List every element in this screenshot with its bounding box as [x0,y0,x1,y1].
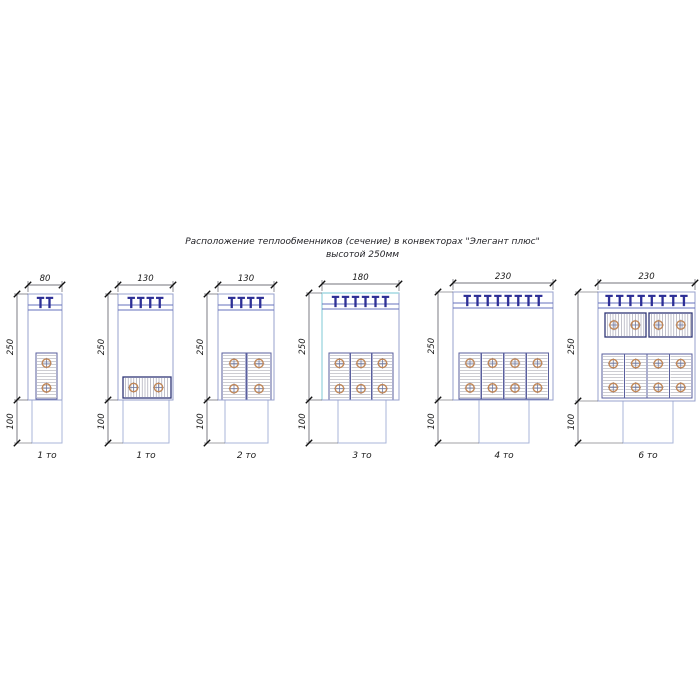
duct-dimension-label: 100 [427,413,437,429]
heat-exchanger [247,353,271,400]
grille-slat-icon [240,298,242,308]
duct-dimension-label: 100 [567,414,577,430]
heat-exchanger [602,354,625,398]
grille-slat-icon [259,298,261,308]
width-dimension-label: 80 [40,274,51,284]
heat-exchanger [222,353,246,400]
grille-slat-icon [528,296,530,306]
convector-cross-sections-svg: 802501001 то1302501001 то1302501002 то18… [0,0,700,700]
grille-slat-icon [608,296,610,306]
exchanger-count-label: 6 то [638,451,658,461]
grille-slat-icon [672,296,674,306]
convector-duct [623,401,673,443]
grille-slat-icon [140,298,142,308]
convector-diagram-2: 1302501001 то [97,274,176,461]
grille-slat-icon [651,296,653,306]
heat-exchanger [459,353,481,399]
grille-slat-icon [629,296,631,306]
convector-diagram-5: 2302501004 то [427,272,556,461]
convector-duct [338,400,386,443]
convector-diagram-4: 1802501003 то [298,273,402,461]
grille-slat-icon [619,296,621,306]
grille-slat-icon [40,298,42,308]
heat-exchanger [647,354,670,398]
duct-dimension-label: 100 [6,413,16,429]
heat-exchanger [527,353,549,399]
grille-slat-icon [355,297,357,307]
duct-dimension-label: 100 [298,413,308,429]
heat-exchanger [605,313,646,337]
grille-slat-icon [375,297,377,307]
grille-slat-icon [497,296,499,306]
exchanger-count-label: 3 то [352,451,372,461]
grille-slat-icon [149,298,151,308]
grille-slat-icon [130,298,132,308]
exchanger-count-label: 4 то [494,451,514,461]
grille-slat-icon [345,297,347,307]
heat-exchanger [625,354,648,398]
height-dimension-label: 250 [567,338,577,354]
convector-diagram-1: 802501001 то [6,274,65,461]
exchanger-count-label: 1 то [37,451,57,461]
grille-slat-icon [49,298,51,308]
height-dimension-label: 250 [196,339,206,355]
height-dimension-label: 250 [427,338,437,354]
grille-slat-icon [662,296,664,306]
heat-exchanger [372,353,393,400]
grille-slat-icon [159,298,161,308]
grille-slat-icon [538,296,540,306]
width-dimension-label: 230 [495,272,511,282]
height-dimension-label: 250 [97,339,107,355]
convector-diagram-3: 1302501002 то [196,274,277,461]
convector-duct [225,400,268,443]
heat-exchanger [670,354,693,398]
heat-exchanger [123,377,171,398]
heat-exchanger [351,353,372,400]
exchanger-count-label: 1 то [136,451,156,461]
grille-slat-icon [517,296,519,306]
width-dimension-label: 180 [352,273,368,283]
grille-slat-icon [640,296,642,306]
convector-diagram-6: 2302501006 то [567,272,698,461]
drawing-canvas: Расположение теплообменников (сечение) в… [0,0,700,700]
grille-slat-icon [466,296,468,306]
duct-dimension-label: 100 [196,413,206,429]
grille-slat-icon [477,296,479,306]
grille-slat-icon [365,297,367,307]
height-dimension-label: 250 [6,339,16,355]
exchanger-count-label: 2 то [237,451,257,461]
grille-slat-icon [250,298,252,308]
grille-slat-icon [231,298,233,308]
grille-slat-icon [385,297,387,307]
heat-exchanger [504,353,526,399]
convector-duct [32,400,62,443]
convector-duct [479,400,529,443]
height-dimension-label: 250 [298,338,308,354]
convector-duct [123,400,169,443]
width-dimension-label: 130 [238,274,254,284]
grille-slat-icon [683,296,685,306]
width-dimension-label: 230 [638,272,654,282]
duct-dimension-label: 100 [97,413,107,429]
heat-exchanger [36,353,57,399]
grille-slat-icon [487,296,489,306]
heat-exchanger [482,353,504,399]
grille-slat-icon [335,297,337,307]
grille-slat-icon [507,296,509,306]
heat-exchanger [649,313,692,337]
width-dimension-label: 130 [137,274,153,284]
heat-exchanger [329,353,350,400]
